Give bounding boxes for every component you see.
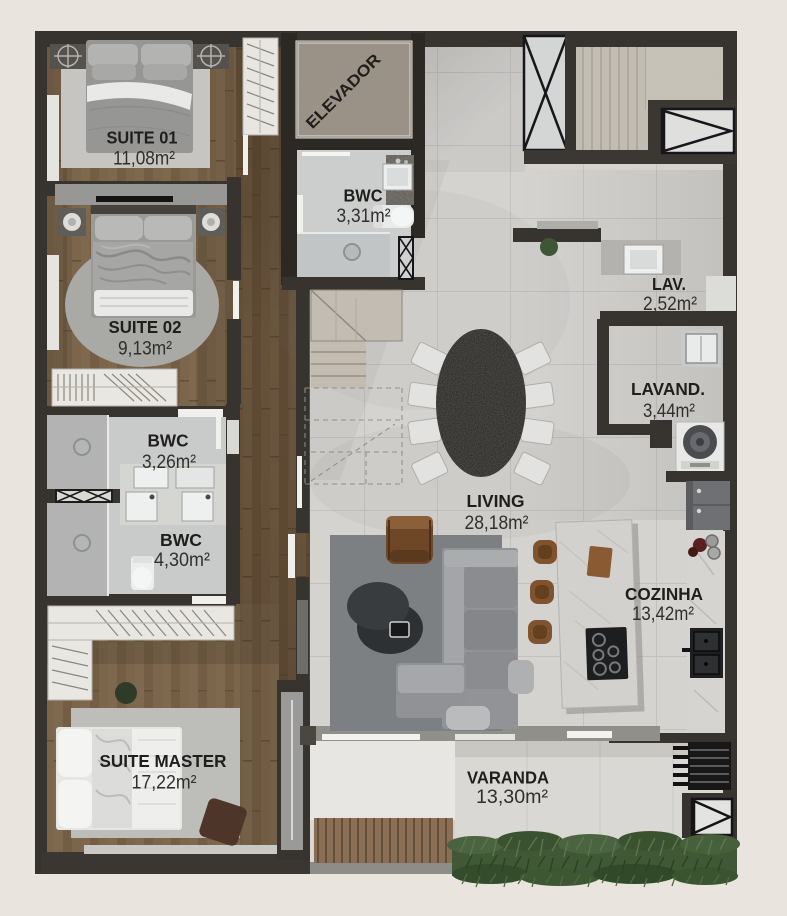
svg-text:VARANDA: VARANDA	[467, 768, 549, 788]
svg-text:13,42m²: 13,42m²	[632, 603, 694, 625]
svg-text:28,18m²: 28,18m²	[465, 512, 529, 534]
svg-text:3,26m²: 3,26m²	[142, 451, 196, 473]
svg-text:SUITE MASTER: SUITE MASTER	[100, 751, 227, 771]
svg-text:LAV.: LAV.	[652, 274, 686, 294]
svg-text:9,13m²: 9,13m²	[118, 338, 172, 360]
svg-text:13,30m²: 13,30m²	[476, 786, 548, 808]
svg-text:BWC: BWC	[148, 431, 189, 451]
svg-text:BWC: BWC	[344, 186, 383, 206]
svg-text:SUITE 01: SUITE 01	[107, 128, 178, 148]
svg-text:4,30m²: 4,30m²	[154, 549, 210, 571]
svg-text:17,22m²: 17,22m²	[132, 772, 197, 794]
svg-text:LIVING: LIVING	[467, 491, 525, 511]
svg-text:COZINHA: COZINHA	[625, 584, 703, 604]
svg-text:SUITE 02: SUITE 02	[109, 317, 182, 337]
svg-text:LAVAND.: LAVAND.	[631, 379, 705, 399]
svg-text:2,52m²: 2,52m²	[643, 293, 697, 315]
svg-text:11,08m²: 11,08m²	[113, 148, 175, 170]
svg-text:BWC: BWC	[160, 530, 202, 550]
svg-text:3,31m²: 3,31m²	[337, 205, 391, 227]
svg-text:3,44m²: 3,44m²	[643, 400, 695, 422]
